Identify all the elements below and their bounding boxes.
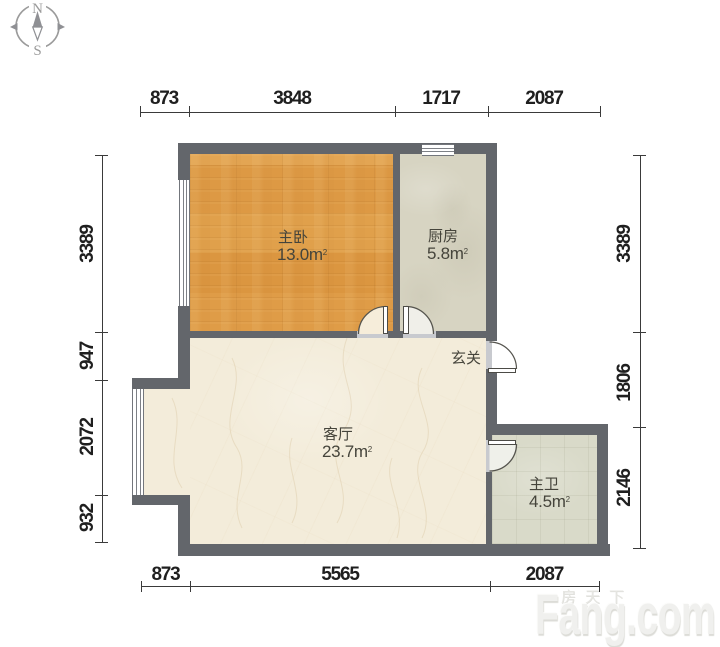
svg-text:N: N	[32, 1, 43, 17]
svg-text:S: S	[33, 43, 41, 59]
